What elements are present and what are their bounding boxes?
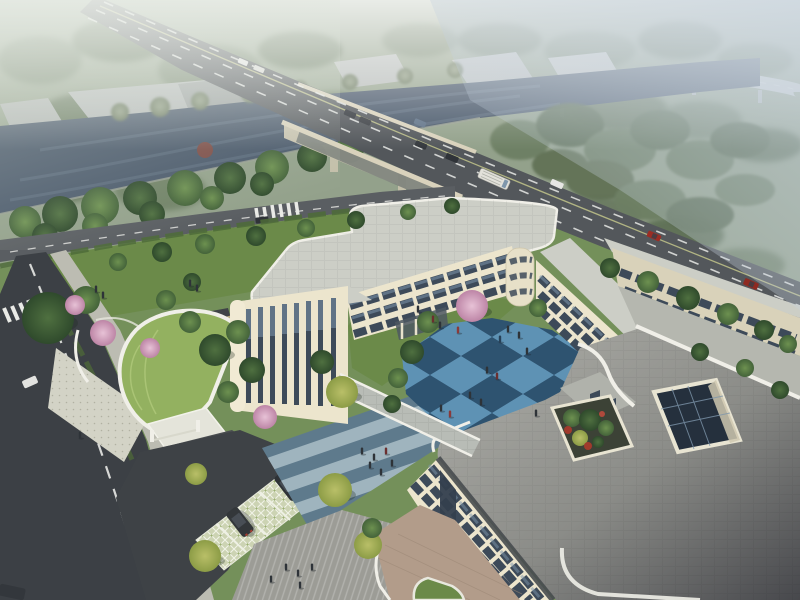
architectural-rendering: [0, 0, 800, 600]
yellow-tree: [185, 463, 207, 485]
yellow-tree: [189, 540, 221, 572]
tree: [183, 273, 201, 291]
haze-top-left: [0, 0, 340, 250]
red-shrub: [584, 442, 592, 450]
tree: [347, 211, 365, 229]
planter-shrub: [563, 409, 581, 427]
tree: [217, 381, 239, 403]
blossom-tree: [90, 320, 116, 346]
gate-post: [196, 420, 200, 432]
tree: [362, 518, 382, 538]
tree: [310, 350, 334, 374]
tree: [676, 286, 700, 310]
tree: [239, 357, 265, 383]
tree: [771, 381, 789, 399]
tree: [529, 299, 547, 317]
blossom-tree: [140, 338, 160, 358]
tree: [754, 320, 774, 340]
tree: [179, 311, 201, 333]
red-shrub: [564, 426, 572, 434]
tree: [400, 204, 416, 220]
tree: [637, 271, 659, 293]
yellow-tree: [326, 376, 358, 408]
tree: [736, 359, 754, 377]
tree: [600, 258, 620, 278]
red-shrub: [599, 411, 605, 417]
tree: [691, 343, 709, 361]
blossom-tree: [456, 290, 488, 322]
tree: [156, 290, 176, 310]
blossom-tree: [65, 295, 85, 315]
tree: [226, 320, 250, 344]
planter-shrub: [598, 420, 614, 436]
tree: [22, 292, 74, 344]
tree: [388, 368, 408, 388]
tree: [109, 253, 127, 271]
tree: [779, 335, 797, 353]
yellow-tree: [318, 473, 352, 507]
rendering-canvas: [0, 0, 800, 600]
planter-shrub: [592, 436, 604, 448]
planter-shrub: [579, 409, 601, 431]
blossom-tree: [253, 405, 277, 429]
tree: [383, 395, 401, 413]
gate-post: [150, 430, 154, 442]
tree: [717, 303, 739, 325]
tree: [400, 340, 424, 364]
tree: [199, 334, 231, 366]
tree: [444, 198, 460, 214]
